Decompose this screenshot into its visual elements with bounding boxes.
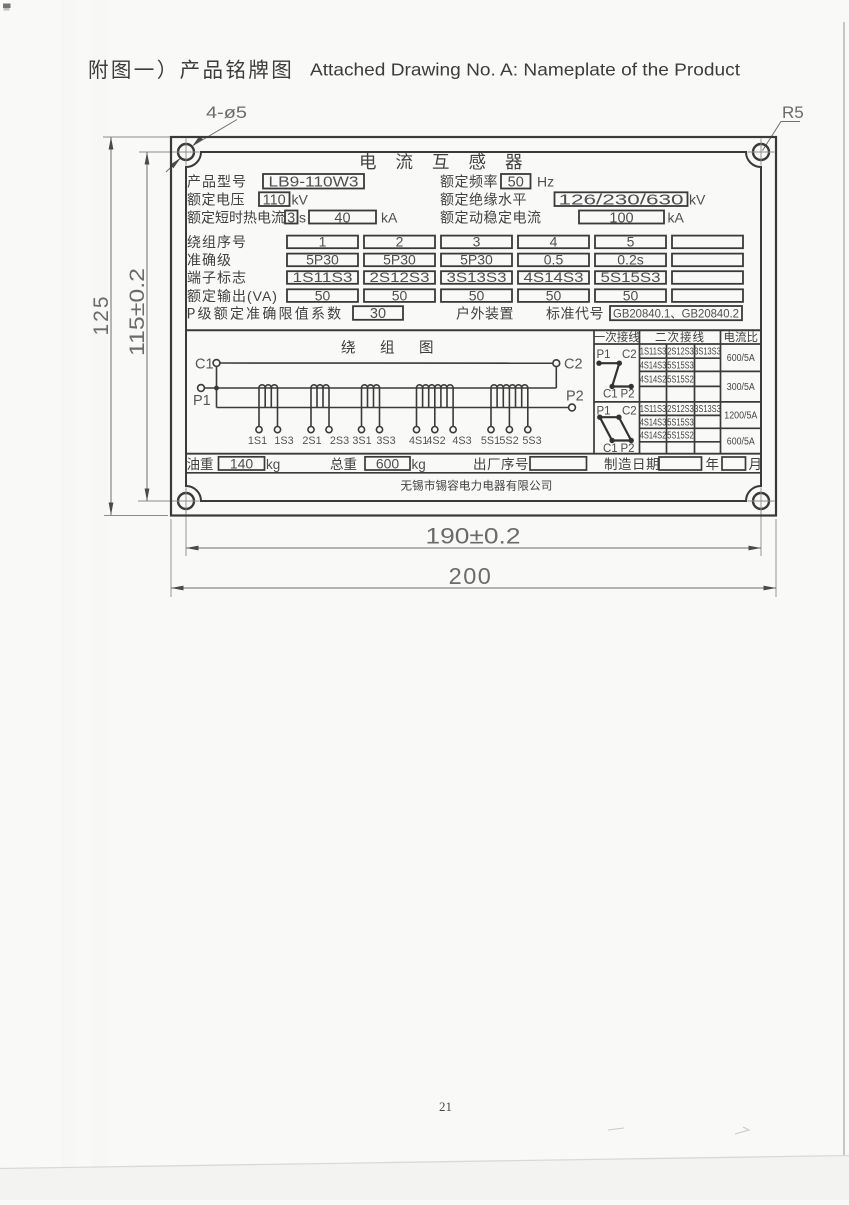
svg-text:kA: kA: [668, 210, 685, 226]
svg-text:额定绝缘水平: 额定绝缘水平: [440, 190, 527, 210]
svg-text:4S1: 4S1: [409, 435, 428, 447]
svg-text:C2: C2: [622, 406, 637, 418]
svg-text:4S14S3: 4S14S3: [640, 360, 667, 371]
svg-text:4S14S2: 4S14S2: [640, 431, 667, 442]
svg-text:C1: C1: [603, 389, 618, 401]
svg-text:Hz: Hz: [537, 174, 554, 190]
svg-text:户外装置: 户外装置: [456, 304, 514, 324]
svg-text:50: 50: [508, 175, 524, 191]
svg-text:1: 1: [319, 234, 327, 250]
svg-text:4-ø5: 4-ø5: [206, 103, 247, 122]
svg-text:600: 600: [376, 455, 400, 471]
svg-text:50: 50: [392, 287, 408, 303]
svg-text:1S1: 1S1: [248, 435, 267, 447]
svg-text:1200/5A: 1200/5A: [724, 411, 757, 422]
svg-text:190±0.2: 190±0.2: [426, 524, 521, 549]
svg-text:额定动稳定电流: 额定动稳定电流: [440, 208, 542, 228]
svg-text:5S15S3: 5S15S3: [667, 360, 694, 371]
svg-text:P2: P2: [566, 389, 584, 405]
svg-text:100: 100: [609, 210, 633, 226]
svg-text:5P30: 5P30: [383, 252, 416, 268]
svg-text:4S2: 4S2: [426, 435, 445, 447]
svg-text:kA: kA: [381, 210, 398, 226]
svg-text:无锡市锡容电力电器有限公司: 无锡市锡容电力电器有限公司: [400, 478, 552, 494]
svg-text:2S12S3: 2S12S3: [667, 347, 694, 358]
svg-text:1S11S3: 1S11S3: [293, 269, 353, 285]
svg-text:GB20840.1、GB20840.2: GB20840.1、GB20840.2: [613, 306, 739, 322]
svg-text:2S12S3: 2S12S3: [667, 404, 694, 415]
svg-text:P1: P1: [597, 349, 611, 361]
svg-text:0.5: 0.5: [544, 252, 564, 268]
svg-text:5S3: 5S3: [522, 435, 541, 447]
svg-text:4S14S3: 4S14S3: [640, 417, 667, 428]
svg-text:126/230/630: 126/230/630: [559, 192, 684, 208]
svg-text:二次接线: 二次接线: [655, 329, 705, 345]
svg-text:C2: C2: [564, 357, 583, 373]
svg-text:3S13S3: 3S13S3: [694, 404, 721, 415]
svg-text:总重: 总重: [330, 453, 357, 473]
svg-text:50: 50: [623, 287, 639, 303]
svg-text:4S14S2: 4S14S2: [640, 374, 667, 385]
svg-text:4S14S3: 4S14S3: [524, 269, 584, 285]
svg-text:40: 40: [334, 210, 350, 226]
svg-text:50: 50: [315, 287, 331, 303]
svg-text:2S3: 2S3: [330, 435, 349, 447]
svg-text:3: 3: [473, 234, 481, 250]
svg-text:200: 200: [449, 563, 493, 589]
svg-text:Attached Drawing No. A: Namepl: Attached Drawing No. A: Nameplate of the…: [310, 60, 740, 80]
svg-text:标准代号: 标准代号: [546, 304, 604, 324]
svg-text:600/5A: 600/5A: [727, 353, 755, 364]
svg-text:300/5A: 300/5A: [727, 382, 755, 393]
svg-text:4S3: 4S3: [452, 435, 471, 447]
svg-text:3S13S3: 3S13S3: [447, 269, 507, 285]
svg-text:产品型号: 产品型号: [187, 172, 247, 192]
svg-text:一次接线: 一次接线: [594, 329, 640, 345]
svg-text:额定电压: 额定电压: [187, 190, 245, 210]
svg-text:1S3: 1S3: [274, 435, 293, 447]
svg-text:3S1: 3S1: [352, 435, 371, 447]
svg-text:1S11S3: 1S11S3: [640, 347, 667, 358]
svg-text:21: 21: [439, 1099, 452, 1114]
svg-text:额定频率: 额定频率: [440, 172, 498, 192]
svg-text:3: 3: [287, 210, 295, 226]
svg-text:电流互感器: 电流互感器: [359, 149, 542, 174]
svg-text:C1: C1: [195, 357, 214, 373]
svg-text:30: 30: [370, 306, 386, 322]
svg-text:125: 125: [90, 294, 113, 335]
svg-text:端子标志: 端子标志: [187, 268, 247, 288]
svg-text:110: 110: [263, 192, 286, 208]
svg-text:LB9-110W3: LB9-110W3: [269, 175, 359, 191]
svg-text:50: 50: [546, 287, 562, 303]
svg-text:制造日期: 制造日期: [604, 453, 660, 473]
svg-text:1S11S3: 1S11S3: [640, 404, 667, 415]
svg-text:电流比: 电流比: [724, 329, 759, 345]
svg-text:kg: kg: [412, 457, 426, 472]
svg-text:3S3: 3S3: [376, 435, 395, 447]
svg-text:5: 5: [627, 234, 635, 250]
svg-text:出厂序号: 出厂序号: [473, 453, 529, 473]
svg-text:R5: R5: [782, 103, 804, 122]
svg-text:2: 2: [396, 234, 404, 250]
svg-text:4: 4: [550, 234, 558, 250]
svg-text:年: 年: [706, 453, 720, 473]
svg-text:附图一）产品铭牌图: 附图一）产品铭牌图: [88, 53, 294, 83]
svg-text:5S15S2: 5S15S2: [667, 431, 694, 442]
svg-text:2S1: 2S1: [302, 435, 321, 447]
svg-text:C2: C2: [622, 349, 637, 361]
svg-text:5S15S3: 5S15S3: [667, 417, 694, 428]
svg-text:绕组序号: 绕组序号: [187, 232, 247, 252]
svg-text:600/5A: 600/5A: [727, 437, 755, 448]
svg-text:115±0.2: 115±0.2: [126, 268, 149, 356]
svg-text:P1: P1: [193, 393, 211, 409]
svg-text:2S12S3: 2S12S3: [370, 269, 430, 285]
svg-text:3S13S3: 3S13S3: [694, 347, 721, 358]
svg-text:kV: kV: [292, 192, 309, 208]
svg-text:140: 140: [230, 455, 254, 471]
svg-text:油重: 油重: [187, 453, 214, 473]
svg-text:5S1: 5S1: [481, 435, 500, 447]
svg-text:0.2s: 0.2s: [617, 252, 643, 268]
svg-text:kg: kg: [266, 457, 280, 472]
svg-text:5S2: 5S2: [499, 435, 518, 447]
svg-text:5P30: 5P30: [306, 252, 339, 268]
svg-text:P2: P2: [621, 389, 635, 401]
svg-text:5S15S3: 5S15S3: [601, 269, 661, 285]
svg-text:50: 50: [469, 287, 485, 303]
svg-text:绕组图: 绕组图: [341, 337, 458, 358]
svg-text:P级额定准确限值系数: P级额定准确限值系数: [187, 304, 344, 324]
svg-text:5S15S2: 5S15S2: [667, 374, 694, 385]
svg-text:5P30: 5P30: [460, 252, 493, 268]
svg-text:s: s: [299, 210, 306, 226]
svg-text:额定短时热电流: 额定短时热电流: [187, 208, 285, 228]
svg-text:kV: kV: [689, 192, 706, 208]
svg-text:月: 月: [749, 453, 763, 473]
